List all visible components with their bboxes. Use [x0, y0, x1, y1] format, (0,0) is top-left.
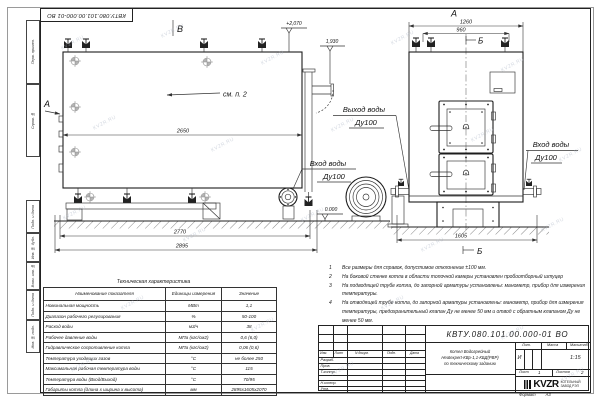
pedestal [437, 202, 499, 227]
col-podp: Подп. [387, 351, 396, 355]
sheet-value: 1 [538, 370, 541, 375]
row-tkontr: Т.контр. [321, 370, 336, 374]
note-text: Все размеры для справок, допустимое откл… [342, 264, 585, 273]
door-handle [430, 172, 452, 177]
target-mark-icon [69, 146, 81, 158]
ground-hatch [391, 228, 549, 235]
note-text: На боковой стенке котла в области топочн… [342, 273, 585, 282]
spec-name: Температура воды (Вход/Выход) [44, 374, 166, 385]
spec-header-name: Наименование показателя [44, 288, 166, 301]
outlet-water-label: Выход воды [343, 105, 386, 114]
dim-2895-label: 2895 [175, 244, 189, 250]
table-row: Максимальная рабочая температура воды°С1… [44, 364, 277, 375]
inlet-water-label-front: Вход воды [533, 140, 570, 149]
dim-2770-label: 2770 [173, 230, 187, 236]
side-view: 2650 В А см. п. 2 [43, 20, 390, 253]
lit-value: И [518, 355, 522, 361]
base-foot [67, 209, 82, 220]
table-row: Расход водым3/ч38 [44, 322, 277, 333]
note-text: На отводящей трубе котла, до запорной ар… [342, 299, 585, 325]
spec-units: мм [166, 385, 222, 396]
valve-icon [305, 197, 313, 206]
spec-name: Номинальная мощность [44, 301, 166, 312]
valve-icon [258, 39, 266, 48]
valve-icon [82, 39, 90, 48]
fan-outlet-duct [392, 196, 404, 224]
format-label: Формат [519, 392, 536, 397]
spec-header-row: Наименование показателя Единицы измерени… [44, 288, 277, 301]
spec-name: Максимальная рабочая температура воды [44, 364, 166, 375]
valve-icon [412, 38, 420, 47]
dim-960-label: 960 [456, 28, 466, 34]
base-rail [66, 203, 216, 209]
spec-table-title: Техническая характеристика [43, 279, 264, 287]
note-item: 1Все размеры для справок, допустимое отк… [329, 264, 585, 273]
spec-name: Рабочее давление воды [44, 332, 166, 343]
inlet-water-dn-side: Ду100 [322, 172, 345, 181]
elevation-1930: 1,930 [320, 39, 345, 84]
spec-name: Габариты котла (длина х ширина х высота) [44, 385, 166, 396]
notes-list: 1Все размеры для справок, допустимое отк… [329, 264, 585, 325]
title-block: Изм. Лист N докум. Подп. Дата Разраб. Пр… [318, 325, 589, 391]
row-razrab: Разраб. [321, 358, 335, 362]
valve-icon [123, 194, 131, 203]
pipe-labels: Выход воды Ду100 Вход воды Ду100 Вход во… [293, 105, 578, 190]
spec-value: 0,6 (6,0) [222, 332, 277, 343]
spec-name: Гидравлическое сопротивление котла [44, 343, 166, 354]
view-label-a-side: А [43, 99, 50, 109]
inlet-flange-side [279, 188, 297, 219]
section-label-b-bottom: Б [477, 247, 482, 256]
spec-units: °С [166, 374, 222, 385]
valve-icon [200, 39, 208, 48]
spec-value: 115 [222, 364, 277, 375]
row-utv: Утв. [321, 387, 330, 391]
sheets-label: Листов [556, 370, 570, 374]
ground-hatch [54, 222, 390, 229]
dim-1605-label: 1605 [455, 234, 468, 240]
col-izm: Изм. [320, 351, 327, 355]
spec-value: 0,06 (0,6) [222, 343, 277, 354]
spec-value: 50-100 [222, 311, 277, 322]
manufacturer-logo: KVZR КОТЕЛЬНЫЙ ЗАВОД РЭП [515, 376, 590, 392]
spec-name: Температура уходящих газов [44, 353, 166, 364]
table-row: Температура уходящих газов°Сне более 250 [44, 353, 277, 364]
doc-code: КВТУ.080.101.00.000-01 ВО [425, 326, 590, 342]
furnace-door-lower [430, 154, 496, 195]
valve-icon [501, 38, 509, 47]
mass-header: Масса [547, 343, 558, 347]
table-row: Габариты котла (длина х ширина х высота)… [44, 385, 277, 396]
spec-header-units: Единицы измерения [166, 288, 222, 301]
spec-name: Расход воды [44, 322, 166, 333]
target-mark-icon [84, 191, 96, 203]
note-number: 1 [329, 264, 342, 273]
col-list: Лист [335, 351, 344, 355]
sheets-value: 2 [581, 370, 584, 375]
target-mark-icon [69, 55, 81, 67]
section-label-b-top: Б [478, 37, 483, 46]
front-view: 1260 960 Б А [391, 9, 549, 257]
inlet-water-label-side: Вход воды [310, 159, 347, 168]
spec-units: % [166, 311, 222, 322]
col-ndoc: N докум. [355, 351, 369, 355]
drawing-sheet: Перв. примен. Справ. № Подп. и дата Инв.… [0, 0, 600, 400]
outlet-pipe [303, 69, 334, 206]
spec-value: не более 250 [222, 353, 277, 364]
inlet-water-dn-front: Ду100 [534, 153, 557, 162]
table-row: Температура воды (Вход/Выход)°С70/95 [44, 374, 277, 385]
spec-value: 2895х1605х2070 [222, 385, 277, 396]
elev-zero-label: 0.000 [325, 207, 338, 213]
spec-units: °С [166, 353, 222, 364]
outlet-water-dn: Ду100 [354, 118, 377, 127]
spec-value: 1,1 [222, 301, 277, 312]
spec-units: МПа (кгс/см2) [166, 332, 222, 343]
view-label-a-front: А [450, 9, 457, 19]
fan-housing [346, 177, 386, 217]
callout-see-item-2: см. п. 2 [223, 92, 247, 99]
logo-text: KVZR [533, 379, 558, 390]
lit-header: Лит. [522, 343, 531, 347]
table-row: Номинальная мощностьМВт1,1 [44, 301, 277, 312]
spec-units: °С [166, 364, 222, 375]
target-mark-icon [69, 101, 81, 113]
scale-header: Масштаб [570, 343, 588, 347]
target-mark-icon [201, 56, 213, 68]
spec-units: м3/ч [166, 322, 222, 333]
spec-name: Диапазон рабочего регулирования [44, 311, 166, 322]
table-row: Рабочее давление водыМПа (кгс/см2)0,6 (6… [44, 332, 277, 343]
col-data: Дата [410, 351, 419, 355]
valve-icon [398, 179, 404, 186]
sheet-label: Лист [519, 370, 529, 374]
format-value: А3 [546, 392, 551, 397]
boiler-body-side [63, 52, 302, 188]
row-nkontr: Н.контр. [321, 381, 337, 385]
scale-value: 1:15 [570, 355, 581, 361]
view-label-b: В [177, 24, 183, 34]
table-row: Диапазон рабочего регулирования%50-100 [44, 311, 277, 322]
door-latch-icon [463, 170, 469, 175]
spec-header-value: Значение [222, 288, 277, 301]
elevation-2070: +2,070 [281, 21, 307, 52]
format-note: ФорматА3 [519, 392, 551, 397]
note-number: 4 [329, 299, 342, 325]
note-item: 4На отводящей трубе котла, до запорной а… [329, 299, 585, 325]
company-line2: ЗАВОД РЭП [561, 384, 581, 388]
spec-table: Наименование показателя Единицы измерени… [43, 287, 277, 396]
note-item: 2На боковой стенке котла в области топоч… [329, 273, 585, 282]
valve-icon [188, 194, 196, 203]
target-mark-icon [199, 191, 211, 203]
valve-icon [427, 38, 435, 47]
dim-2650-label: 2650 [176, 129, 190, 135]
spec-value: 38 [222, 322, 277, 333]
door-latch-icon [463, 124, 469, 129]
note-number: 3 [329, 282, 342, 300]
elevation-zero: 0.000 [317, 207, 343, 221]
valve-icon [64, 39, 72, 48]
row-prov: Пров. [321, 364, 331, 368]
elev-2070-label: +2,070 [286, 21, 302, 27]
valve-icon [74, 194, 82, 203]
valve-icon [526, 179, 532, 186]
spec-units: МВт [166, 301, 222, 312]
note-text: На подводящей трубе котла, до запорной а… [342, 282, 585, 300]
spec-units: МПа (кгс/см2) [166, 343, 222, 354]
logo-mark-icon [524, 380, 531, 389]
dim-1260-label: 1260 [460, 20, 473, 26]
spec-value: 70/95 [222, 374, 277, 385]
furnace-door-upper [430, 101, 496, 153]
note-item: 3На подводящей трубе котла, до запорной … [329, 282, 585, 300]
spec-table-block: Техническая характеристика Наименование … [43, 279, 264, 396]
door-handle [430, 126, 452, 131]
table-row: Гидравлическое сопротивление котлаМПа (к… [44, 343, 277, 354]
doc-title: Котел Водогрейный Heatexpert-КВр-1,1-КБД… [425, 342, 515, 374]
elev-1930-label: 1,930 [326, 39, 339, 45]
inlet-stub-right [523, 179, 541, 197]
note-number: 2 [329, 273, 342, 282]
inlet-stub-left [391, 179, 409, 197]
